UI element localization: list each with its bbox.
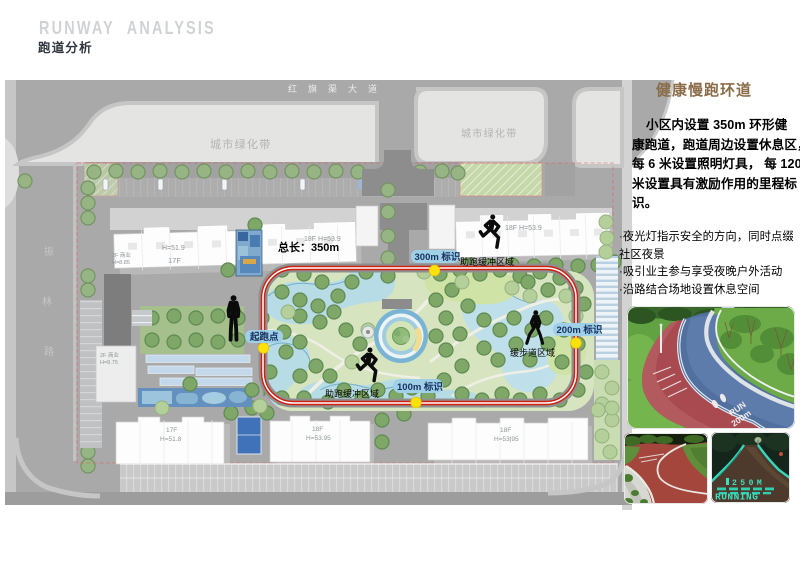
svg-text:H=8.75: H=8.75 (100, 360, 118, 366)
svg-text:路: 路 (44, 345, 54, 358)
svg-text:2F 商业: 2F 商业 (100, 351, 119, 359)
svg-text:红旗渠大道: 红旗渠大道 (288, 83, 388, 94)
svg-text:100m 标识: 100m 标识 (397, 381, 443, 393)
svg-text:H=53.95: H=53.95 (306, 435, 331, 442)
svg-text:200m 标识: 200m 标识 (557, 324, 603, 336)
svg-text:起跑点: 起跑点 (249, 331, 279, 343)
svg-text:2F 商业: 2F 商业 (112, 251, 131, 259)
svg-text:H=51.9: H=51.9 (162, 245, 185, 252)
svg-text:RUNNING: RUNNING (715, 492, 758, 503)
svg-text:助跑缓冲区域: 助跑缓冲区域 (460, 256, 514, 267)
svg-text:助跑缓冲区域: 助跑缓冲区域 (325, 388, 379, 399)
svg-text:H=8.85: H=8.85 (112, 260, 130, 266)
svg-text:H=53|95: H=53|95 (494, 436, 519, 443)
svg-text:振: 振 (44, 245, 54, 258)
svg-text:250M: 250M (732, 479, 765, 488)
svg-text:H=51.8: H=51.8 (160, 436, 182, 443)
svg-text:18F: 18F (500, 427, 511, 434)
svg-text:缓步道区域: 缓步道区域 (510, 347, 555, 358)
svg-text:城市绿化带: 城市绿化带 (461, 127, 518, 140)
svg-text:17F: 17F (166, 427, 177, 434)
svg-text:18F H=53.9: 18F H=53.9 (505, 225, 542, 232)
svg-text:城市绿化带: 城市绿化带 (210, 137, 272, 151)
svg-text:300m 标识: 300m 标识 (415, 251, 461, 263)
svg-text:18F: 18F (312, 426, 323, 433)
svg-text:总长：350m: 总长：350m (278, 240, 339, 254)
svg-text:17F: 17F (168, 256, 181, 265)
svg-text:林: 林 (42, 295, 52, 308)
